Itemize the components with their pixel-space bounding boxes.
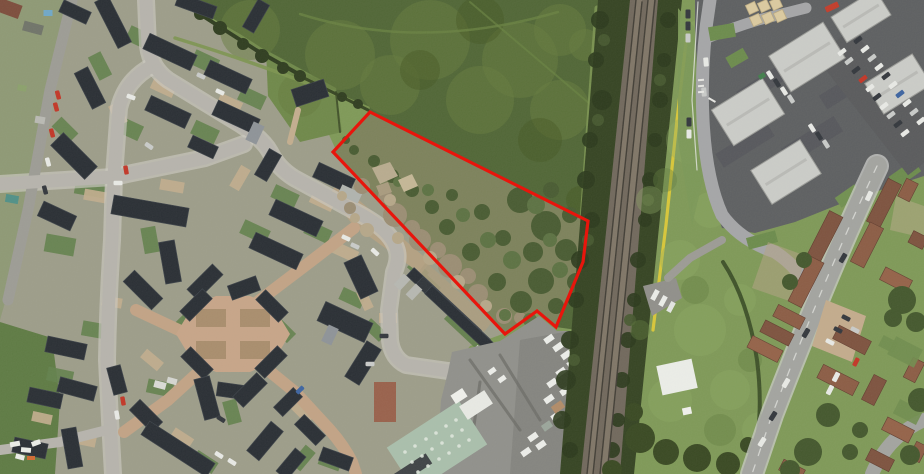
aerial-photo-canvas <box>0 0 924 474</box>
aerial-photo <box>0 0 924 474</box>
grain-overlay <box>0 0 924 474</box>
